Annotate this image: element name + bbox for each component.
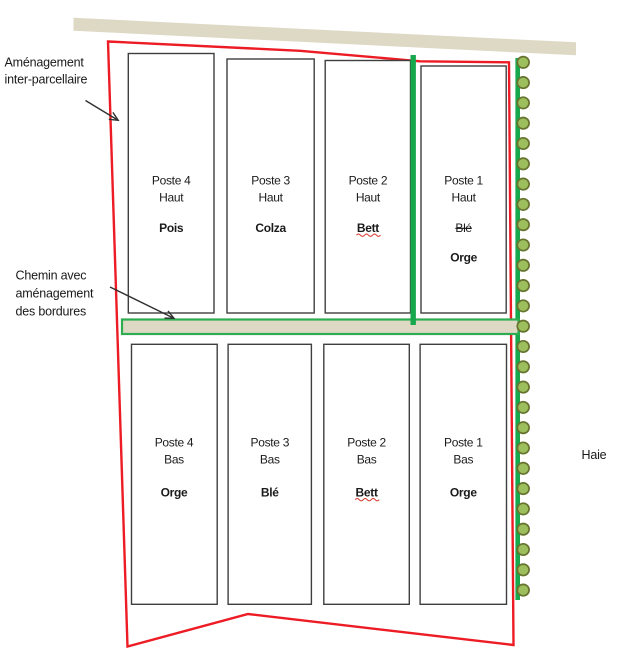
svg-text:Blé: Blé [261, 486, 279, 500]
svg-text:Poste 1: Poste 1 [444, 436, 483, 450]
svg-text:inter-parcellaire: inter-parcellaire [5, 73, 88, 87]
svg-text:aménagement: aménagement [16, 287, 94, 301]
svg-text:Bas: Bas [164, 453, 184, 467]
svg-text:Pois: Pois [159, 221, 184, 235]
svg-text:Chemin avec: Chemin avec [16, 269, 87, 283]
svg-text:Aménagement: Aménagement [5, 56, 85, 70]
svg-text:Bett: Bett [356, 486, 378, 500]
svg-text:Poste 3: Poste 3 [251, 436, 290, 450]
svg-text:Poste 4: Poste 4 [155, 436, 194, 450]
svg-text:Poste 4: Poste 4 [152, 174, 191, 188]
svg-text:Bas: Bas [260, 453, 280, 467]
svg-text:Orge: Orge [161, 486, 188, 500]
svg-text:Haut: Haut [356, 191, 381, 205]
svg-text:Haut: Haut [452, 191, 477, 205]
svg-text:Haut: Haut [259, 191, 284, 205]
svg-text:Orge: Orge [450, 251, 477, 265]
svg-text:Blé: Blé [455, 221, 472, 235]
svg-text:Poste 2: Poste 2 [349, 174, 388, 188]
svg-text:Poste 3: Poste 3 [251, 174, 290, 188]
svg-text:Bett: Bett [357, 221, 379, 235]
svg-text:Haut: Haut [159, 191, 184, 205]
svg-text:des bordures: des bordures [16, 305, 87, 319]
svg-text:Poste 1: Poste 1 [444, 174, 483, 188]
svg-text:Bas: Bas [453, 453, 473, 467]
svg-text:Colza: Colza [255, 221, 286, 235]
svg-text:Poste 2: Poste 2 [347, 436, 386, 450]
svg-text:Orge: Orge [450, 486, 477, 500]
svg-text:Haie: Haie [582, 448, 607, 462]
svg-text:Bas: Bas [357, 453, 377, 467]
